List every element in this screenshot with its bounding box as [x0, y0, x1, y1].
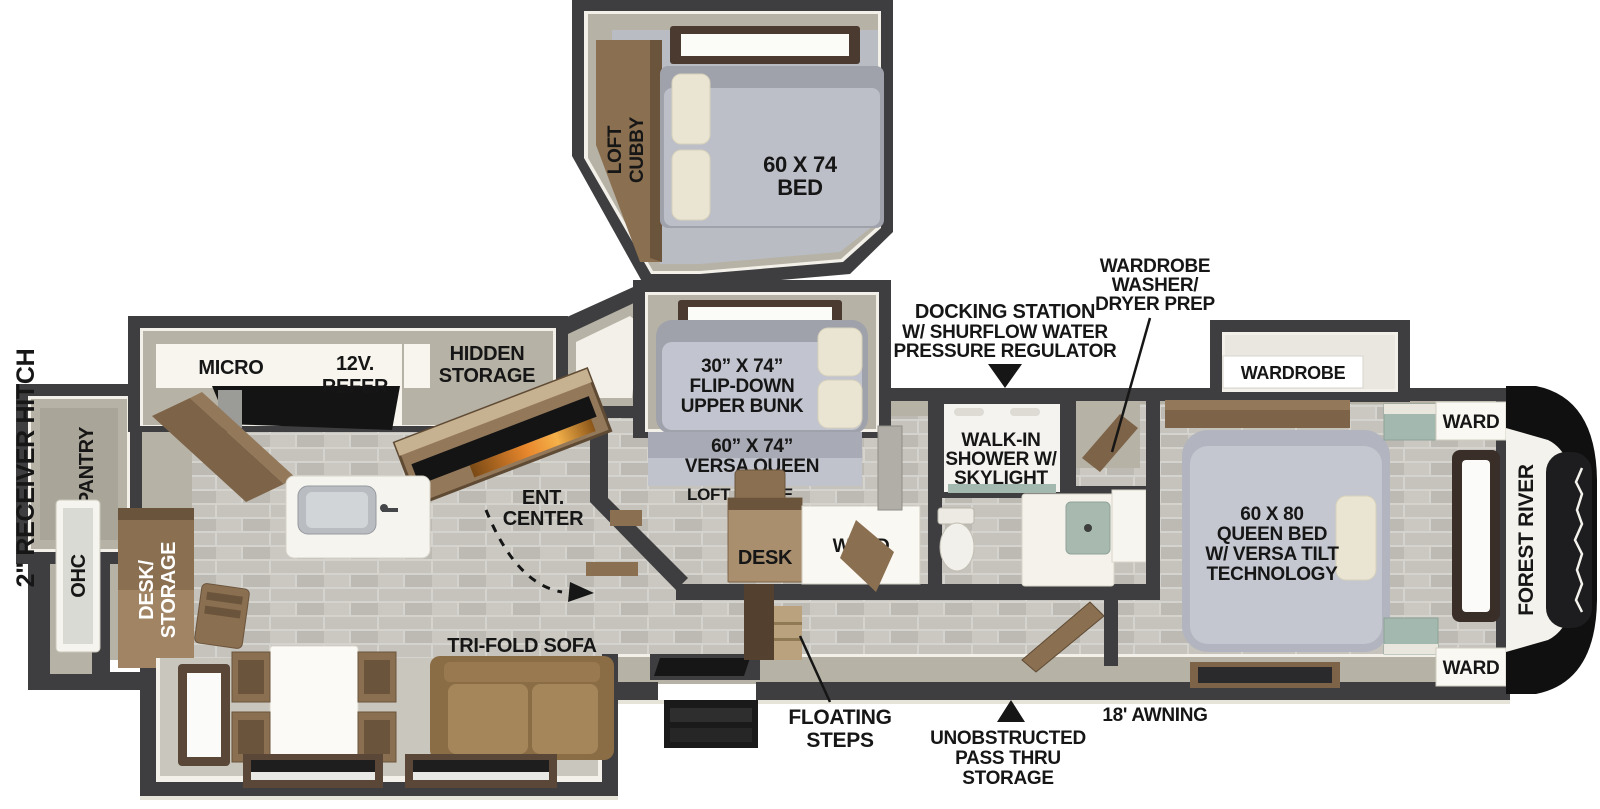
rear-desk-label-line1: DESK/: [136, 559, 158, 619]
ohc-label: OHC: [68, 554, 90, 598]
queen-bed-label-line4: TECHNOLOGY: [1206, 564, 1338, 585]
bunk-pillow-2: [818, 380, 862, 428]
sofa-label: TRI-FOLD SOFA: [447, 635, 596, 657]
loft-bed-label-line2: BED: [777, 175, 823, 200]
wall-step-2: [586, 562, 638, 576]
pass-label-line2: PASS THRU: [955, 748, 1061, 769]
ent-center-label-line1: ENT.: [522, 487, 564, 509]
front-cap: FOREST RIVER: [1506, 386, 1597, 694]
ward-top-label: WARD: [1443, 412, 1500, 433]
pass-label-line3: STORAGE: [962, 768, 1054, 789]
linen-cabinet: [1112, 490, 1146, 562]
chair-slat-b: [238, 720, 264, 754]
bottom-slide: TRI-FOLD SOFA: [140, 635, 618, 800]
pass-label-line1: UNOBSTRUCTED: [930, 728, 1086, 749]
queen-bed-label-line2: QUEEN BED: [1217, 524, 1327, 545]
loft-cubby-label-line1: LOFT: [605, 125, 626, 174]
shower-label-line1: WALK-IN: [961, 430, 1040, 451]
kitchen-island: [286, 476, 430, 558]
entry-step-tread-2: [670, 728, 752, 742]
versa-queen-label-line1: 60” X 74”: [711, 436, 793, 457]
floorplan-page: LOFT CUBBY 60 X 74 BED: [0, 0, 1600, 809]
wd-closet-left-wall: [1060, 398, 1076, 498]
bottom-slide-trim: [140, 796, 618, 800]
pass-thru-hatch: [1198, 667, 1332, 683]
wd-label-line3: DRYER PREP: [1095, 294, 1215, 315]
hidden-storage-label-line1: HIDDEN: [450, 343, 525, 365]
queen-bed-label-line1: 60 X 80: [1240, 504, 1303, 525]
desk-label: DESK: [738, 547, 793, 569]
dinette-table: [270, 646, 358, 768]
chair-slat-d: [364, 720, 390, 754]
front-window-pane: [1462, 460, 1490, 612]
bottom-wall-right: [756, 682, 1510, 700]
docking-label-line1: DOCKING STATION: [915, 301, 1095, 323]
brand-label: FOREST RIVER: [1515, 464, 1538, 616]
loft-window-pane: [681, 34, 849, 56]
steps-label-line2: STEPS: [806, 729, 874, 752]
bunk-desk-shelf: [728, 498, 802, 510]
floating-steps-column: [744, 584, 774, 660]
top-wall-bedroom: [1405, 388, 1510, 401]
sofa-cushion-1: [448, 684, 528, 754]
docking-label-line3: PRESSURE REGULATOR: [894, 341, 1118, 362]
bunk-label-line1: 30” X 74”: [701, 356, 783, 377]
hidden-storage-label-line2: STORAGE: [439, 365, 535, 387]
ent-center-label-line2: CENTER: [503, 508, 584, 530]
pantry-label: PANTRY: [76, 426, 98, 505]
rear-desk-edge: [118, 508, 194, 520]
ward-bottom-label: WARD: [1443, 658, 1500, 679]
chair-slat-a: [238, 660, 264, 694]
bunk-desk: [728, 498, 802, 582]
nightstand-bottom-edge: [1384, 644, 1438, 654]
toilet-icon: [940, 523, 974, 571]
queen-bed-label-line3: W/ VERSA TILT: [1205, 544, 1339, 565]
entry-step-tread-1: [670, 708, 752, 722]
bottom-slide-left-wall: [140, 668, 156, 796]
queen-pillow: [1336, 496, 1376, 580]
entry-mat: [654, 658, 750, 676]
wd-label-line1: WARDROBE: [1100, 256, 1211, 277]
shower-skylight-2: [1010, 408, 1040, 416]
loft-room: LOFT CUBBY 60 X 74 BED: [572, 0, 893, 287]
slide-side-window-pane: [187, 673, 221, 757]
bunk-label-line2: FLIP-DOWN: [690, 376, 795, 397]
hall-wall-stub: [1104, 596, 1118, 666]
docking-label-line2: W/ SHURFLOW WATER: [902, 322, 1108, 343]
refer-label-line1: 12V.: [336, 353, 374, 375]
bunk-label-line3: UPPER BUNK: [681, 396, 804, 417]
step-line-1: [774, 622, 802, 625]
loft-pillow-1: [672, 74, 710, 144]
bunk-pillow-1: [818, 328, 862, 376]
loft-pillow-2: [672, 150, 710, 220]
wardrobe-label: WARDROBE: [1241, 363, 1346, 383]
refer-label-line2: REFER: [322, 376, 389, 398]
toilet-tank: [938, 508, 974, 524]
bedroom-top-wall-left: [1160, 388, 1218, 401]
sink-drain-icon: [1084, 524, 1092, 532]
wall-step-1: [610, 510, 642, 526]
shower-skylight-1: [954, 408, 984, 416]
floorplan-drawing: LOFT CUBBY 60 X 74 BED: [0, 0, 1600, 809]
rear-desk-label-line2: STORAGE: [158, 542, 180, 638]
steps-label-line1: FLOATING: [788, 706, 891, 729]
tri-fold-sofa: [430, 656, 614, 760]
docking-arrow-icon: [988, 364, 1022, 388]
awning-label: 18' AWNING: [1102, 705, 1207, 726]
bath-bedroom-wall: [1146, 388, 1160, 600]
counter-end: [404, 344, 430, 388]
wd-label-line2: WASHER/: [1112, 275, 1200, 296]
brand-mark: FOREST RIVER: [1515, 464, 1538, 616]
sofa-cushion-2: [532, 684, 598, 754]
front-cap-decal: [1546, 452, 1592, 628]
island-sink-basin: [306, 492, 368, 528]
sofa-back: [444, 662, 600, 682]
floating-steps: [774, 606, 802, 660]
loft-bed-label-line1: 60 X 74: [763, 152, 838, 177]
pantry-label-text: PANTRY: [76, 426, 98, 505]
chair-slat-c: [364, 660, 390, 694]
micro-label: MICRO: [198, 357, 263, 379]
hitch-callout: 2" RECEIVER HITCH: [12, 349, 40, 588]
loft-cubby-label: LOFT CUBBY: [605, 116, 648, 183]
faucet-spout: [382, 508, 398, 512]
headboard-top: [1165, 400, 1350, 410]
nightstand-top-edge: [1384, 404, 1438, 414]
bunk-cabinet: [878, 426, 902, 510]
hitch-label: 2" RECEIVER HITCH: [12, 349, 40, 588]
shower-label-line2: SHOWER W/: [945, 449, 1057, 470]
slide-floor-window-1-lite: [251, 772, 375, 780]
step-line-2: [774, 638, 802, 641]
slide-floor-window-2-lite: [413, 772, 549, 780]
ohc-label-text: OHC: [68, 554, 90, 598]
loft-cubby-label-line2: CUBBY: [627, 116, 648, 183]
shower-label-line3: SKYLIGHT: [954, 468, 1048, 489]
